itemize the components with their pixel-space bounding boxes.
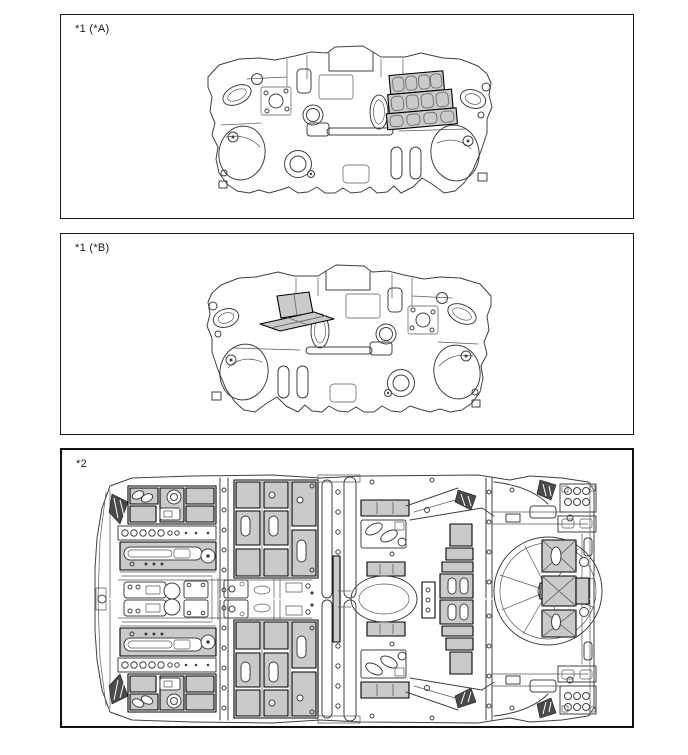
tunnel-damper-strip — [333, 556, 340, 642]
panel-a-label: *1 (*A) — [75, 23, 110, 35]
dash-panel-view-b-drawing — [61, 234, 633, 434]
figure-panel-view-a: *1 (*A) — [60, 14, 634, 219]
noise-pad-view-b — [260, 292, 334, 331]
noise-pad-view-a — [383, 70, 457, 130]
figure-panel-underbody: *2 — [60, 448, 634, 728]
dash-panel-view-a-drawing — [61, 15, 633, 218]
service-manual-figure-page: { "panels": [ { "label": "*1 (*A)" }, { … — [0, 0, 688, 755]
panel-underbody-label: *2 — [76, 458, 87, 470]
figure-panel-view-b: *1 (*B) — [60, 233, 634, 435]
underbody-drawing — [62, 450, 632, 726]
fuel-tank-outline — [351, 576, 417, 622]
panel-b-label: *1 (*B) — [75, 242, 110, 254]
